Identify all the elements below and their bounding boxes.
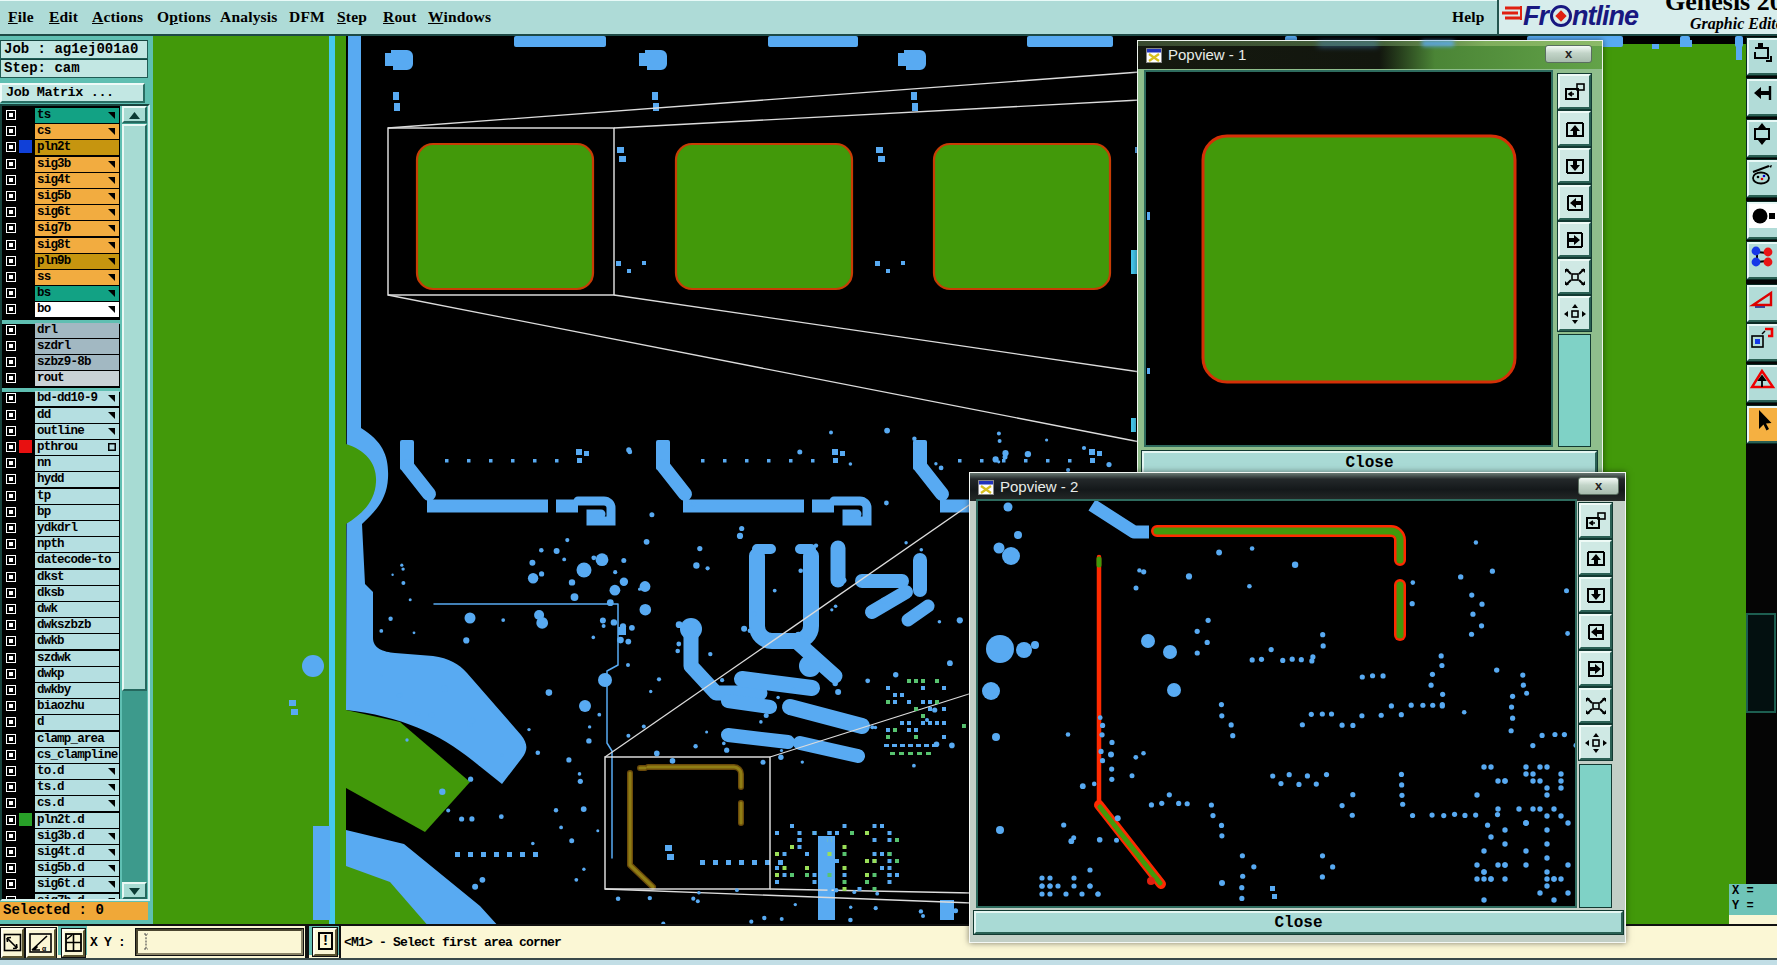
- svg-text:ntline: ntline: [1572, 1, 1639, 31]
- svg-text:Genesis 20: Genesis 20: [1665, 0, 1777, 16]
- svg-text:Fr: Fr: [1523, 1, 1550, 31]
- svg-text:Graphic Editor: Graphic Editor: [1690, 15, 1777, 33]
